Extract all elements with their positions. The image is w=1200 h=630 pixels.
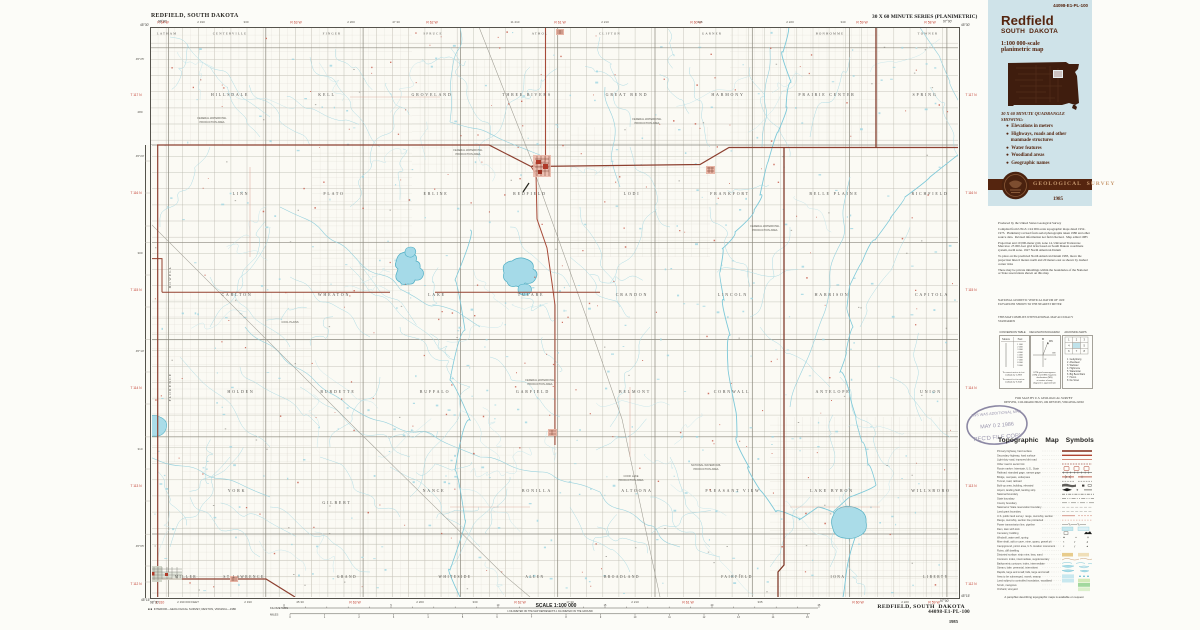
svg-text:Mine shaft, adit or cave, mine: Mine shaft, adit or cave, mine, quarry, … xyxy=(997,540,1052,544)
svg-text:10: 10 xyxy=(497,604,500,607)
svg-text:2 210: 2 210 xyxy=(601,20,609,24)
svg-text:8: 8 xyxy=(565,616,567,619)
svg-text:280: 280 xyxy=(137,110,142,114)
svg-text:Secondary highway, hard surfac: Secondary highway, hard surface xyxy=(997,453,1036,457)
svg-text:5: 5 xyxy=(1083,343,1085,347)
svg-text:47 30: 47 30 xyxy=(392,20,400,24)
svg-text:R 63 W: R 63 W xyxy=(290,21,302,25)
svg-text:2 200: 2 200 xyxy=(347,20,355,24)
svg-text:Meters: Meters xyxy=(1002,338,1010,341)
svg-text:9 000: 9 000 xyxy=(1017,364,1023,367)
svg-text:declination (MN): declination (MN) xyxy=(1037,376,1053,379)
svg-text:2 190: 2 190 xyxy=(244,600,252,604)
svg-text:5: 5 xyxy=(462,616,464,619)
svg-text:98°00': 98°00' xyxy=(158,20,167,24)
svg-text:6: 6 xyxy=(496,616,498,619)
svg-text:Tunnel, road, railroad: Tunnel, road, railroad xyxy=(997,479,1022,483)
svg-text:45°30': 45°30' xyxy=(961,23,970,27)
svg-text:9°: 9° xyxy=(1045,359,1047,361)
svg-text:T 115 N: T 115 N xyxy=(130,288,142,292)
svg-text:45°05': 45°05' xyxy=(136,544,145,548)
svg-text:340: 340 xyxy=(840,20,845,24)
svg-text:45°20': 45°20' xyxy=(136,154,145,158)
svg-text:2: 2 xyxy=(1075,338,1077,342)
svg-text:8 De Smet: 8 De Smet xyxy=(1067,379,1079,382)
svg-text:Campground, picnic area, U.S.: Campground, picnic area, U.S. location m… xyxy=(997,544,1055,548)
svg-text:Dam, dam with lock: Dam, dam with lock xyxy=(997,527,1020,531)
svg-text:x: x xyxy=(1063,545,1065,548)
svg-text:T 112 N: T 112 N xyxy=(965,582,977,586)
svg-text:3: 3 xyxy=(393,616,395,619)
svg-text:Distorted surface: strip mine,: Distorted surface: strip mine, lava, san… xyxy=(997,553,1043,557)
svg-text:Bathymetric contours: index, i: Bathymetric contours: index, intermediat… xyxy=(997,561,1045,565)
svg-text:2: 2 xyxy=(358,616,360,619)
svg-text:▲: ▲ xyxy=(1086,545,1089,548)
svg-text:y: y xyxy=(1074,545,1076,548)
svg-text:13: 13 xyxy=(737,616,740,619)
svg-text:6: 6 xyxy=(1068,349,1070,353)
svg-text:diagram is approximate: diagram is approximate xyxy=(1033,381,1057,384)
svg-text:y: y xyxy=(1074,541,1076,544)
svg-text:Range, township, section line: Range, township, section line protracted xyxy=(997,518,1044,522)
svg-text:Airport, landing field, landin: Airport, landing field, landing strip xyxy=(997,488,1036,492)
svg-text:U.S. public land survey: range: U.S. public land survey: range, township… xyxy=(997,514,1053,518)
svg-text:GN: GN xyxy=(1052,353,1056,355)
svg-text:15: 15 xyxy=(604,604,607,607)
svg-text:98°00': 98°00' xyxy=(150,601,159,605)
svg-text:Cemetery, building: Cemetery, building xyxy=(997,531,1019,535)
svg-text:State boundary: State boundary xyxy=(997,497,1015,501)
svg-text:4: 4 xyxy=(427,616,429,619)
svg-text:R 58 W: R 58 W xyxy=(924,21,936,25)
svg-text:11: 11 xyxy=(668,616,671,619)
svg-text:Windmill, water well, spring: Windmill, water well, spring xyxy=(997,535,1029,539)
svg-text:T 113 N: T 113 N xyxy=(130,484,142,488)
svg-text:2 190: 2 190 xyxy=(197,20,205,24)
svg-text:1: 1 xyxy=(324,616,326,619)
svg-text:multiply by 0.3048: multiply by 0.3048 xyxy=(1005,382,1023,384)
svg-text:T 114 N: T 114 N xyxy=(130,386,142,390)
svg-text:97°00': 97°00' xyxy=(943,20,952,24)
svg-text:0: 0 xyxy=(289,616,291,619)
svg-text:at center of map: at center of map xyxy=(1037,379,1054,382)
svg-text:T 112 N: T 112 N xyxy=(130,582,142,586)
svg-text:Rapids, large and small; falls: Rapids, large and small; falls, large an… xyxy=(997,570,1050,574)
svg-text:Bridge, overpass, underpass: Bridge, overpass, underpass xyxy=(997,475,1031,479)
svg-text:✈: ✈ xyxy=(1076,488,1079,492)
svg-text:★: ★ xyxy=(1042,337,1045,341)
svg-text:45°15': 45°15' xyxy=(961,594,970,598)
svg-text:Railroad: standard gage, narro: Railroad: standard gage, narrow gage xyxy=(997,471,1041,475)
svg-text:(GN) and 1985 magnetic: (GN) and 1985 magnetic xyxy=(1033,374,1058,377)
svg-text:x: x xyxy=(1063,541,1065,544)
svg-text:MILES: MILES xyxy=(270,613,279,617)
svg-text:4: 4 xyxy=(1068,343,1070,347)
svg-text:Ruins, cliff dwelling: Ruins, cliff dwelling xyxy=(997,548,1020,552)
svg-text:7: 7 xyxy=(1075,349,1077,353)
svg-text:45°15': 45°15' xyxy=(141,598,150,602)
svg-text:T 115 N: T 115 N xyxy=(965,288,977,292)
svg-text:T 117 N: T 117 N xyxy=(130,93,142,97)
svg-text:300: 300 xyxy=(137,251,142,255)
svg-text:MN: MN xyxy=(1049,340,1053,343)
svg-text:Power transmission line, pipel: Power transmission line, pipeline xyxy=(997,522,1035,526)
svg-text:9: 9 xyxy=(600,616,602,619)
svg-text:T 117 N: T 117 N xyxy=(965,93,977,97)
svg-text:Built-up area, building, eleva: Built-up area, building, elevated xyxy=(997,484,1034,488)
svg-text:97°00': 97°00' xyxy=(940,599,949,603)
svg-text:7: 7 xyxy=(531,616,533,619)
svg-text:Route marker: Interstate, U.S.: Route marker: Interstate, U.S., State xyxy=(997,466,1040,470)
svg-text:12: 12 xyxy=(703,616,706,619)
svg-text:R 61 W: R 61 W xyxy=(554,21,566,25)
svg-text:National or State reservation: National or State reservation boundary xyxy=(997,505,1042,509)
svg-text:Orchard, vineyard: Orchard, vineyard xyxy=(997,587,1018,591)
svg-text:County boundary: County boundary xyxy=(997,501,1017,505)
svg-text:8: 8 xyxy=(1083,349,1085,353)
svg-text:UTM grid convergence: UTM grid convergence xyxy=(1033,371,1056,374)
svg-text:20: 20 xyxy=(711,604,714,607)
svg-text:T 116 N: T 116 N xyxy=(965,191,977,195)
svg-text:R 59 W: R 59 W xyxy=(856,21,868,25)
svg-text:Other road in sector link: Other road in sector link xyxy=(997,462,1025,466)
svg-text:T 113 N: T 113 N xyxy=(965,484,977,488)
svg-text:335: 335 xyxy=(697,20,702,24)
svg-text:multiply by 3.2808: multiply by 3.2808 xyxy=(1005,375,1023,377)
svg-text:Scrub, mangrove: Scrub, mangrove xyxy=(997,583,1017,587)
svg-text:Feet: Feet xyxy=(1017,338,1022,341)
svg-text:2 220: 2 220 xyxy=(786,20,794,24)
svg-text:Primary highway, hard surface: Primary highway, hard surface xyxy=(997,449,1032,453)
svg-text:2 190 000 FEET: 2 190 000 FEET xyxy=(177,600,199,604)
svg-text:Light-duty road, improved dirt: Light-duty road, improved dirt road xyxy=(997,458,1037,462)
svg-text:310: 310 xyxy=(137,447,142,451)
svg-text:45°25': 45°25' xyxy=(136,57,145,61)
svg-text:To convert feet to meters: To convert feet to meters xyxy=(1002,378,1024,381)
svg-text:11 210: 11 210 xyxy=(511,20,520,24)
svg-text:National boundary: National boundary xyxy=(997,492,1019,496)
svg-text:Stream, lake: perennial, inter: Stream, lake: perennial, intermittent xyxy=(997,566,1038,570)
svg-text:330: 330 xyxy=(243,20,248,24)
svg-text:MAY 0 2 1986: MAY 0 2 1986 xyxy=(980,422,1014,431)
svg-text:T 116 N: T 116 N xyxy=(130,191,142,195)
svg-text:Area to be submerged, marsh, s: Area to be submerged, marsh, swamp xyxy=(997,574,1042,578)
svg-text:▲: ▲ xyxy=(1086,541,1089,544)
svg-text:R 62 W: R 62 W xyxy=(426,21,438,25)
svg-text:10: 10 xyxy=(634,616,637,619)
svg-text:3: 3 xyxy=(1083,338,1085,342)
svg-text:5: 5 xyxy=(390,604,392,607)
svg-text:45°30': 45°30' xyxy=(140,23,149,27)
svg-text:T 114 N: T 114 N xyxy=(965,386,977,390)
svg-text:14: 14 xyxy=(772,616,775,619)
svg-text:1: 1 xyxy=(1068,338,1070,342)
svg-text:Land grant boundary: Land grant boundary xyxy=(997,510,1022,514)
svg-text:To convert meters to feet: To convert meters to feet xyxy=(1002,371,1024,374)
svg-text:45°10': 45°10' xyxy=(136,349,145,353)
